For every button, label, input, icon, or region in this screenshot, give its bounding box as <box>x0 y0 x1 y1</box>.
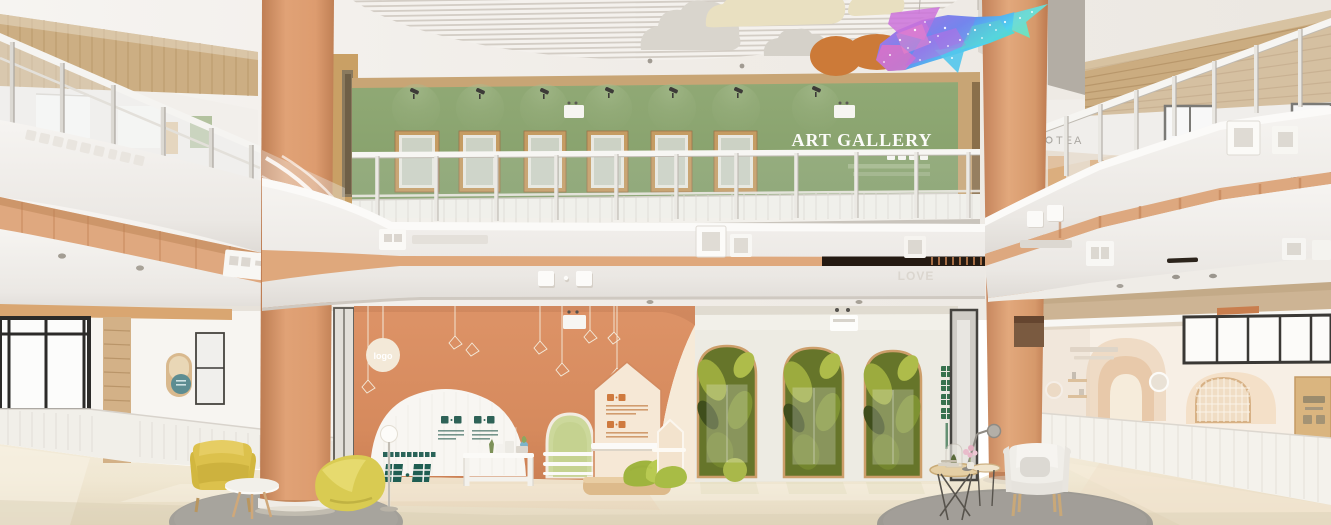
svg-text:logo: logo <box>374 351 393 361</box>
svg-text:LOVE: LOVE <box>898 269 935 283</box>
svg-text:ART GALLERY: ART GALLERY <box>792 130 933 150</box>
